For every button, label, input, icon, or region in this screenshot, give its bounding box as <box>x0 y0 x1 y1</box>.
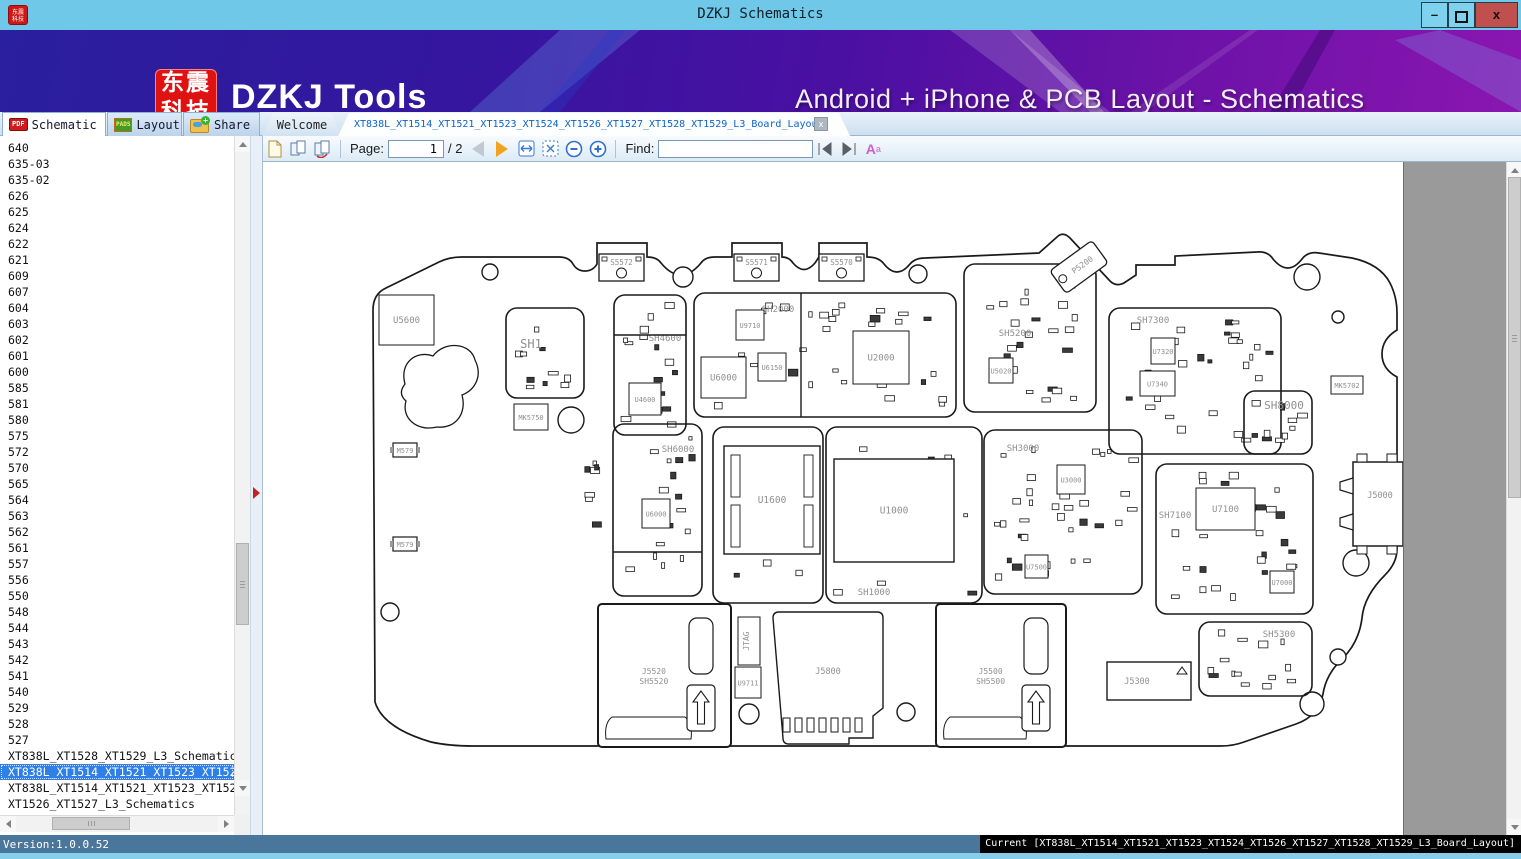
sidebar-item[interactable]: 624 <box>0 220 234 236</box>
sidebar-item[interactable]: 601 <box>0 348 234 364</box>
connector-M579: M579 <box>390 443 420 457</box>
sidebar-item[interactable]: 548 <box>0 604 234 620</box>
find-next-icon[interactable] <box>838 138 860 160</box>
svg-text:SH3000: SH3000 <box>1007 444 1040 454</box>
connector-J5500: J5500SH5500 <box>936 604 1066 747</box>
svg-text:U5600: U5600 <box>393 316 420 326</box>
mounting-hole <box>381 603 399 621</box>
zoom-in-icon[interactable] <box>587 138 609 160</box>
sidebar-item[interactable]: 640 <box>0 140 234 156</box>
tab-bar: PDF Schematic PADS Layout + Share Welcom… <box>0 112 1521 136</box>
sidebar-item[interactable]: 572 <box>0 444 234 460</box>
svg-text:M579: M579 <box>397 447 414 455</box>
sidebar-item[interactable]: 603 <box>0 316 234 332</box>
svg-text:SH2000: SH2000 <box>762 305 795 315</box>
connector-M579: M579 <box>390 537 420 551</box>
mounting-hole <box>909 265 927 283</box>
pdf-page[interactable]: SH1SH4600SH2000SH5200SH7300SH8000SH3000S… <box>263 162 1404 835</box>
sidebar-list: 640635-03635-026266256246226216096076046… <box>0 140 234 812</box>
pads-icon: PADS <box>114 118 132 132</box>
connector-J5800: J5800 <box>773 612 883 744</box>
tab-layout-label: Layout <box>136 118 179 132</box>
status-bar: Current [XT838L_XT1514_XT1521_XT1523_XT1… <box>0 835 1521 859</box>
connector-S5570: S5570 <box>819 254 864 281</box>
doc-tab-close-icon[interactable]: x <box>814 117 828 131</box>
sidebar-item[interactable]: 550 <box>0 588 234 604</box>
svg-text:SH7300: SH7300 <box>1137 316 1170 326</box>
banner-tagline: Android + iPhone & PCB Layout - Schemati… <box>795 84 1365 112</box>
component-U7340: U7340 <box>1140 371 1175 396</box>
sidebar-page-list: 640635-03635-026266256246226216096076046… <box>0 136 234 835</box>
page-continuous-icon[interactable] <box>312 138 334 160</box>
svg-text:MK5750: MK5750 <box>518 414 543 422</box>
svg-text:U7500: U7500 <box>1026 564 1047 572</box>
sidebar-item[interactable]: 575 <box>0 428 234 444</box>
sidebar-file-item[interactable]: XT838L_XT1514_XT1521_XT1523_XT1524_XT1 <box>0 780 234 796</box>
title-bar: 东震科技 DZKJ Schematics – x <box>0 0 1521 30</box>
connector-S5571: S5571 <box>734 254 779 281</box>
sidebar-item[interactable]: 564 <box>0 492 234 508</box>
component-U4600: U4600 <box>629 383 661 415</box>
status-current-zone: Current [XT838L_XT1514_XT1521_XT1523_XT1… <box>980 835 1521 853</box>
sidebar-file-item[interactable]: XT1526_XT1527_L3_Schematics <box>0 796 234 812</box>
page-single-icon[interactable] <box>264 138 286 160</box>
component-U7100: U7100 <box>1196 488 1255 530</box>
mounting-hole <box>1294 264 1320 290</box>
doc-tab-board-layout[interactable]: XT838L_XT1514_XT1521_XT1523_XT1524_XT152… <box>338 113 850 136</box>
svg-text:U6000: U6000 <box>645 511 666 519</box>
close-button[interactable]: x <box>1475 2 1518 28</box>
mounting-hole <box>482 264 498 280</box>
sidebar-item[interactable]: 635-02 <box>0 172 234 188</box>
doc-tab-welcome[interactable]: Welcome <box>262 113 342 136</box>
sidebar-hscrollbar-thumb[interactable] <box>52 817 130 830</box>
sidebar-item[interactable]: 621 <box>0 252 234 268</box>
canvas-scrollbar-thumb[interactable] <box>1508 177 1521 498</box>
find-previous-icon[interactable] <box>814 138 836 160</box>
app-banner: 东震科技 DZKJ Tools Android + iPhone & PCB L… <box>0 30 1521 112</box>
svg-text:U1600: U1600 <box>758 495 787 506</box>
sidebar-item[interactable]: 607 <box>0 284 234 300</box>
sidebar-item[interactable]: 565 <box>0 476 234 492</box>
pdf-icon: PDF <box>9 118 28 131</box>
svg-text:S5571: S5571 <box>745 258 768 267</box>
svg-text:M579: M579 <box>397 541 414 549</box>
fit-page-icon[interactable] <box>539 138 561 160</box>
sidebar-item[interactable]: 528 <box>0 716 234 732</box>
mounting-hole <box>1330 649 1346 665</box>
component-MK5750: MK5750 <box>514 404 548 430</box>
find-label: Find: <box>625 141 654 156</box>
zoom-out-icon[interactable] <box>563 138 585 160</box>
find-input[interactable] <box>658 140 813 158</box>
page-facing-icon[interactable] <box>288 138 310 160</box>
maximize-button[interactable] <box>1448 2 1475 28</box>
sidebar-item[interactable]: 542 <box>0 652 234 668</box>
sidebar-item[interactable]: 625 <box>0 204 234 220</box>
status-current-document: Current [XT838L_XT1514_XT1521_XT1523_XT1… <box>985 838 1515 849</box>
sidebar-item[interactable]: 543 <box>0 636 234 652</box>
svg-text:JTAG: JTAG <box>742 631 751 650</box>
sidebar-item[interactable]: 544 <box>0 620 234 636</box>
svg-text:U9710: U9710 <box>739 322 760 330</box>
sidebar-item[interactable]: 570 <box>0 460 234 476</box>
component-U7320: U7320 <box>1151 338 1175 364</box>
svg-text:J5500: J5500 <box>979 667 1003 676</box>
minimize-button[interactable]: – <box>1421 2 1448 28</box>
svg-text:U9711: U9711 <box>737 680 758 688</box>
component-U3000: U3000 <box>1057 465 1085 494</box>
svg-text:S5572: S5572 <box>610 258 633 267</box>
app-name: DZKJ Tools <box>231 78 427 112</box>
component-U6000: U6000 <box>642 499 670 528</box>
tab-share[interactable]: + Share <box>183 112 260 136</box>
sidebar-item[interactable]: 562 <box>0 524 234 540</box>
connector-S5572: S5572 <box>599 254 644 281</box>
scroll-down-icon[interactable] <box>1507 819 1521 835</box>
doc-tab-welcome-label: Welcome <box>277 118 328 132</box>
status-version: Version:1.0.0.52 <box>3 838 109 851</box>
sidebar-item[interactable]: 581 <box>0 396 234 412</box>
component-U6150: U6150 <box>758 353 786 381</box>
component-U5020: U5020 <box>989 358 1013 383</box>
mounting-hole <box>558 407 584 433</box>
sidebar-item[interactable]: 602 <box>0 332 234 348</box>
connector-J5520: J5520SH5520 <box>598 604 731 747</box>
sidebar-item[interactable]: 540 <box>0 684 234 700</box>
component-JTAG: JTAG <box>738 617 760 665</box>
component-U5600: U5600 <box>379 295 434 345</box>
component-U9710: U9710 <box>736 310 764 340</box>
svg-text:U7000: U7000 <box>1271 579 1292 587</box>
page-number-input[interactable] <box>388 140 444 158</box>
previous-page-icon[interactable] <box>467 138 489 160</box>
sidebar-item[interactable]: 561 <box>0 540 234 556</box>
sidebar-item[interactable]: 585 <box>0 380 234 396</box>
svg-text:SH1000: SH1000 <box>858 588 891 598</box>
sidebar-file-item[interactable]: XT838L_XT1528_XT1529_L3_Schematics <box>0 748 234 764</box>
company-logo: 东震科技 <box>155 69 217 112</box>
svg-text:MK5702: MK5702 <box>1334 382 1359 390</box>
scroll-left-icon[interactable] <box>0 816 16 832</box>
sidebar-item[interactable]: 600 <box>0 364 234 380</box>
mounting-hole <box>673 267 693 287</box>
svg-text:U1000: U1000 <box>880 506 909 517</box>
svg-text:SH5200: SH5200 <box>999 329 1032 339</box>
doc-tab-board-layout-label: XT838L_XT1514_XT1521_XT1523_XT1524_XT152… <box>354 119 824 130</box>
component-MK5702: MK5702 <box>1331 376 1363 394</box>
page-total: / 2 <box>448 141 462 156</box>
status-bottom-strip <box>0 853 1521 859</box>
sidebar-item[interactable]: 580 <box>0 412 234 428</box>
sidebar-item[interactable]: 529 <box>0 700 234 716</box>
sidebar-item[interactable]: 557 <box>0 556 234 572</box>
sidebar-item[interactable]: 527 <box>0 732 234 748</box>
svg-text:SH5500: SH5500 <box>976 677 1005 686</box>
tab-layout[interactable]: PADS Layout <box>107 112 182 136</box>
maximize-icon <box>1455 11 1468 23</box>
svg-text:SH7100: SH7100 <box>1159 511 1192 521</box>
mounting-hole <box>739 704 759 724</box>
svg-text:S5570: S5570 <box>830 258 853 267</box>
scroll-right-icon[interactable] <box>218 816 234 832</box>
svg-text:U7340: U7340 <box>1147 381 1168 389</box>
svg-text:SH5520: SH5520 <box>639 677 668 686</box>
svg-text:SH1: SH1 <box>520 337 542 351</box>
text-size-icon[interactable]: Aa <box>862 138 884 160</box>
sidebar-item[interactable]: 635-03 <box>0 156 234 172</box>
next-page-icon[interactable] <box>491 138 513 160</box>
sidebar-item[interactable]: 563 <box>0 508 234 524</box>
svg-text:U5020: U5020 <box>990 368 1011 376</box>
svg-text:J5520: J5520 <box>642 667 666 676</box>
window-title: DZKJ Schematics <box>0 6 1521 22</box>
connector-J5300: J5300 <box>1107 662 1191 700</box>
svg-text:SH6000: SH6000 <box>662 445 695 455</box>
sidebar-scrollbar-thumb[interactable] <box>236 543 249 625</box>
component-U9711: U9711 <box>735 667 761 698</box>
sidebar-item[interactable]: 622 <box>0 236 234 252</box>
scroll-up-icon[interactable] <box>1507 162 1521 178</box>
svg-text:U7320: U7320 <box>1152 348 1173 356</box>
sidebar-file-item-selected[interactable]: XT838L_XT1514_XT1521_XT1523_XT1524_XT1 <box>0 764 234 780</box>
scroll-down-icon[interactable] <box>235 780 251 796</box>
svg-text:U2000: U2000 <box>867 354 894 364</box>
canvas-vertical-scrollbar[interactable] <box>1506 162 1521 835</box>
component-U7500: U7500 <box>1025 555 1048 578</box>
splitter-collapse-icon[interactable] <box>253 487 260 499</box>
sidebar-vertical-scrollbar[interactable] <box>234 136 250 815</box>
svg-text:J5800: J5800 <box>815 667 841 677</box>
sidebar-item[interactable]: 604 <box>0 300 234 316</box>
sidebar-item[interactable]: 609 <box>0 268 234 284</box>
toolbar-separator <box>615 140 616 158</box>
component-U1600: U1600 <box>724 446 820 554</box>
page-label: Page: <box>350 141 384 156</box>
tab-schematic-label: Schematic <box>32 118 97 132</box>
sidebar-item[interactable]: 541 <box>0 668 234 684</box>
svg-text:U4600: U4600 <box>634 396 655 404</box>
fit-width-icon[interactable] <box>515 138 537 160</box>
svg-text:SH8000: SH8000 <box>1264 399 1304 412</box>
toolbar-separator <box>340 140 341 158</box>
component-U1000: U1000 <box>834 459 954 562</box>
pcb-board-drawing: SH1SH4600SH2000SH5200SH7300SH8000SH3000S… <box>263 162 1403 835</box>
sidebar-horizontal-scrollbar[interactable] <box>0 815 234 832</box>
scroll-up-icon[interactable] <box>235 136 251 152</box>
component-U6000: U6000 <box>701 357 746 398</box>
tab-share-label: Share <box>214 118 250 132</box>
sidebar-item[interactable]: 626 <box>0 188 234 204</box>
document-canvas: SH1SH4600SH2000SH5200SH7300SH8000SH3000S… <box>262 162 1521 835</box>
svg-text:U7100: U7100 <box>1212 505 1239 515</box>
tab-schematic[interactable]: PDF Schematic <box>2 112 106 136</box>
sidebar-item[interactable]: 556 <box>0 572 234 588</box>
mounting-hole <box>897 703 915 721</box>
sidebar-splitter[interactable] <box>250 136 262 835</box>
svg-text:SH5300: SH5300 <box>1263 630 1296 640</box>
svg-text:J5000: J5000 <box>1367 491 1393 501</box>
svg-text:U6000: U6000 <box>710 374 737 384</box>
svg-text:U6150: U6150 <box>761 364 782 372</box>
mounting-hole <box>1332 311 1344 323</box>
pdf-toolbar: Page: / 2 Find: Aa <box>262 136 1521 162</box>
share-folder-icon: + <box>190 117 210 132</box>
component-U7000: U7000 <box>1270 571 1294 593</box>
svg-text:U3000: U3000 <box>1060 477 1081 485</box>
component-U2000: U2000 <box>853 331 909 384</box>
svg-text:J5300: J5300 <box>1124 677 1150 687</box>
